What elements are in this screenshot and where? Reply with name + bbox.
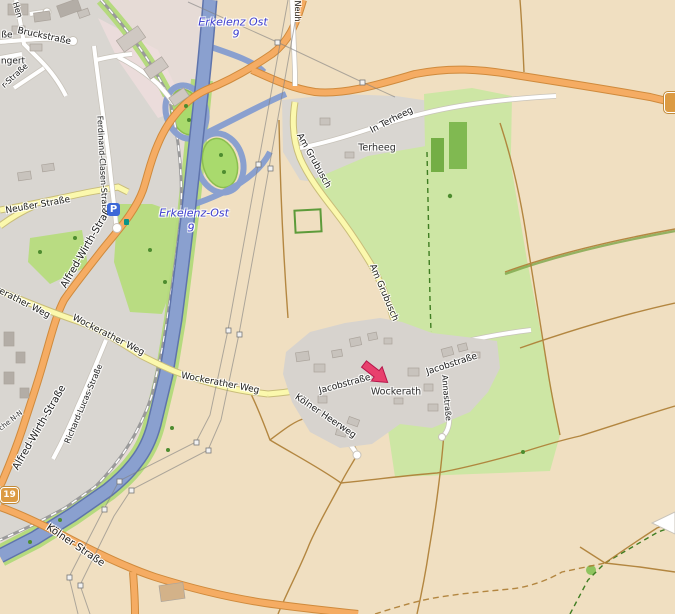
junction-number-top: 9: [233, 29, 240, 40]
street-label-neuh: Neuh: [293, 0, 301, 21]
place-label-wockerath: Wockerath: [371, 387, 421, 397]
junction-label-erkelenz-ost-top: Erkelenz Ost: [198, 17, 267, 28]
parking-icon: P: [107, 203, 120, 216]
route-shield-partial: [664, 92, 675, 113]
junction-number-2: 9: [188, 223, 195, 234]
junction-label-erkelenz-ost-2: Erkelenz-Ost: [159, 208, 229, 219]
street-label-partial-sse: ße: [1, 32, 12, 41]
place-label-terheeg: Terheeg: [358, 143, 396, 153]
map-canvas[interactable]: Hen ße Bruckstraße ngert r-Straße Erkele…: [0, 0, 675, 614]
amenity-icon: [124, 219, 129, 225]
route-shield-19: 19: [0, 487, 19, 503]
map-graphics: [0, 0, 675, 614]
